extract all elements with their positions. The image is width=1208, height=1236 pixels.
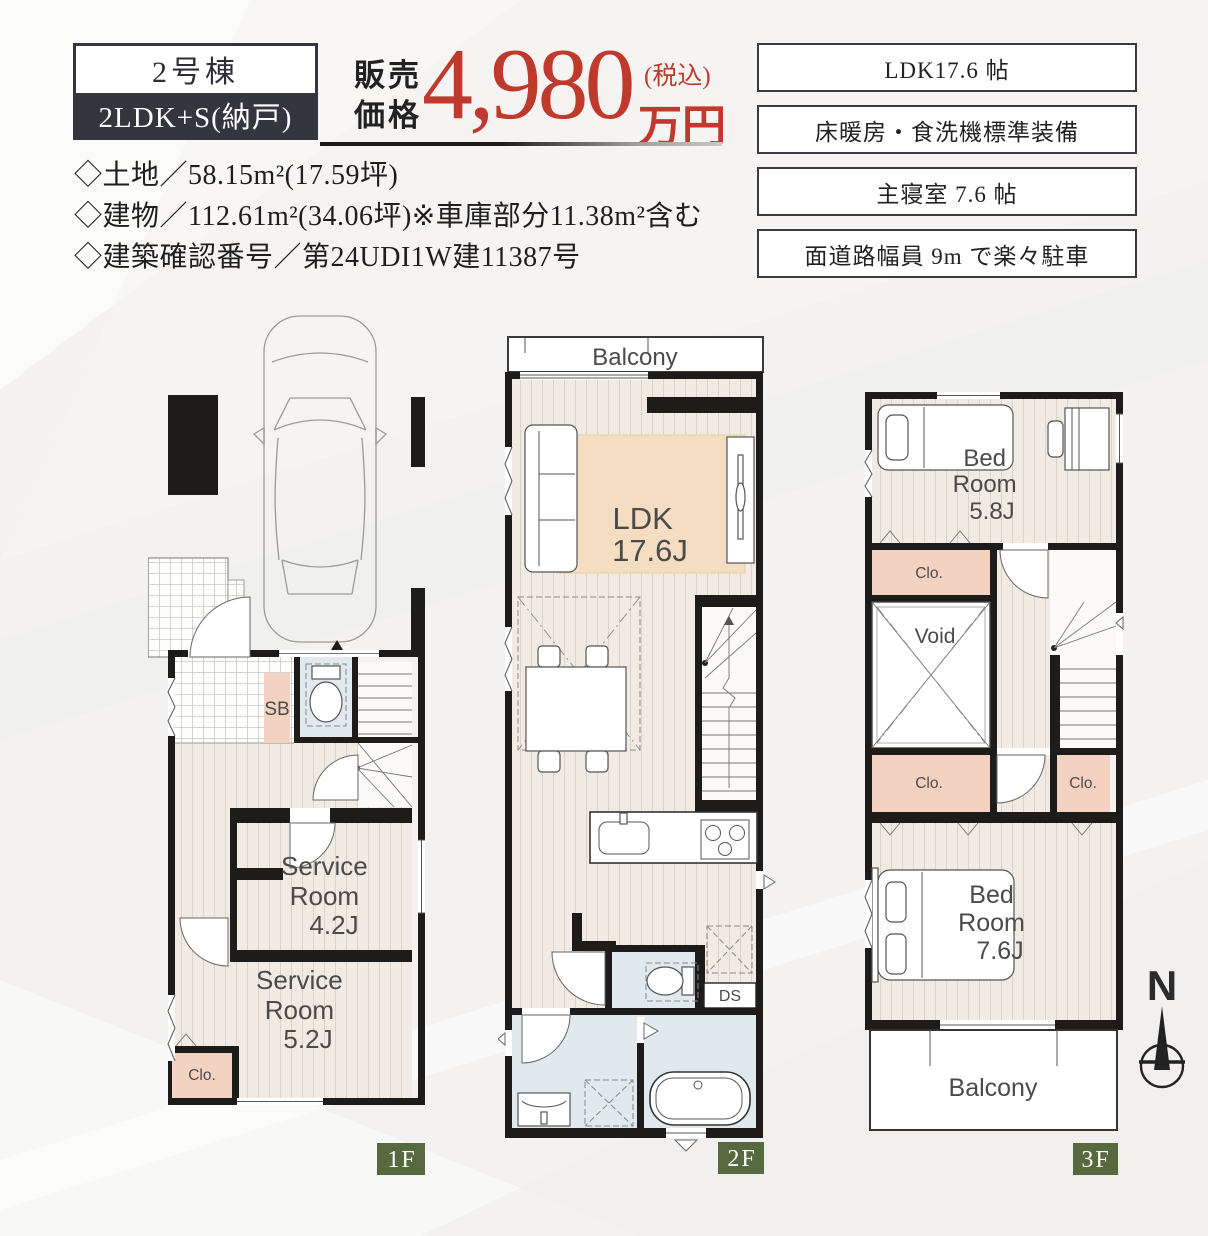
feature-road: 面道路幅員 9m で楽々駐車 bbox=[757, 229, 1137, 278]
dining-table-icon bbox=[526, 667, 626, 751]
window-entry-left bbox=[168, 678, 175, 736]
balcony-2f: Balcony bbox=[508, 337, 763, 372]
stairs-1f bbox=[354, 662, 412, 807]
void-area: Void bbox=[872, 602, 990, 748]
flyer-canvas: 2号棟 2LDK+S(納戸) 販売 価格 4,980 (税込) 万円 ◇土地／5… bbox=[0, 0, 1208, 1236]
sofa-icon bbox=[525, 425, 577, 572]
parking-wall-left bbox=[168, 395, 218, 495]
closet-1f-label: Clo. bbox=[188, 1067, 216, 1084]
balcony-3f: Balcony bbox=[870, 1030, 1117, 1130]
layout-type: 2LDK+S(納戸) bbox=[76, 93, 315, 137]
window-ldk-left bbox=[505, 447, 512, 515]
feature-main-bedroom: 主寝室 7.6 帖 bbox=[757, 167, 1137, 216]
window-stairs-right bbox=[1116, 613, 1123, 655]
duct-space-label: DS bbox=[719, 988, 741, 1005]
stairs-2f bbox=[695, 595, 763, 800]
window-bedroom-b-bottom bbox=[940, 1020, 1055, 1030]
building-number: 2号棟 bbox=[76, 46, 315, 93]
feature-equipment: 床暖房・食洗機標準装備 bbox=[757, 105, 1137, 154]
detail-land: ◇土地／58.15m²(17.59坪) bbox=[74, 156, 754, 197]
balcony-3f-label: Balcony bbox=[949, 1074, 1038, 1102]
detail-confirmation-number: ◇建築確認番号／第24UDI1W建11387号 bbox=[74, 238, 754, 279]
closet-b-label: Clo. bbox=[915, 775, 943, 792]
tv-board-icon bbox=[727, 437, 754, 563]
window-bath-bottom bbox=[666, 1128, 706, 1151]
window-service-a-right bbox=[418, 840, 425, 913]
svg-text:1F: 1F bbox=[387, 1147, 416, 1173]
floor-plan-2f: Balcony bbox=[498, 333, 798, 1178]
svg-text:2F: 2F bbox=[727, 1146, 756, 1172]
svg-text:3F: 3F bbox=[1081, 1147, 1110, 1173]
floor-plan-1f: SB Clo. bbox=[148, 298, 468, 1180]
vanity-icon bbox=[518, 1093, 570, 1126]
void-label: Void bbox=[915, 625, 956, 648]
feature-ldk: LDK17.6 帖 bbox=[757, 43, 1137, 92]
detail-building: ◇建物／112.61m²(34.06坪)※車庫部分11.38m²含む bbox=[74, 197, 754, 238]
compass-north-label: N bbox=[1147, 962, 1177, 1009]
price-label: 販売 価格 bbox=[354, 56, 422, 137]
bathtub-icon bbox=[650, 1072, 750, 1125]
compass: N bbox=[1125, 962, 1199, 1112]
price-block: 販売 価格 4,980 (税込) 万円 bbox=[320, 40, 730, 152]
closet-c-label: Clo. bbox=[1069, 775, 1097, 792]
balcony-door-2f bbox=[520, 372, 648, 380]
ldk-label: LDK 17.6J bbox=[612, 501, 688, 568]
window-desk-right bbox=[1116, 414, 1123, 463]
price-tax-note: (税込) bbox=[644, 56, 711, 92]
window-service-b-left bbox=[168, 995, 175, 1061]
building-badge: 2号棟 2LDK+S(納戸) bbox=[73, 43, 318, 140]
window-washroom-left bbox=[498, 1030, 512, 1056]
parking-wall-right bbox=[411, 397, 425, 467]
compass-needle-icon bbox=[1154, 1006, 1170, 1070]
price-underline bbox=[320, 142, 722, 146]
window-dining-left bbox=[505, 627, 512, 691]
feature-list: LDK17.6 帖 床暖房・食洗機標準装備 主寝室 7.6 帖 面道路幅員 9m… bbox=[757, 43, 1137, 291]
shoe-box-label: SB bbox=[264, 699, 289, 720]
window-bedroom-a-left bbox=[865, 450, 872, 497]
window-bedroom-b-left bbox=[865, 880, 872, 948]
kitchen-counter bbox=[590, 812, 757, 863]
balcony-2f-label: Balcony bbox=[592, 344, 677, 371]
car-icon bbox=[254, 316, 386, 642]
floor-plan-3f: Clo. Void bbox=[858, 388, 1140, 1183]
window-top-3f bbox=[937, 392, 1000, 399]
closet-a-label: Clo. bbox=[915, 565, 943, 582]
window-service-b-bottom bbox=[237, 1098, 323, 1105]
price-amount: 4,980 bbox=[422, 34, 632, 136]
property-details: ◇土地／58.15m²(17.59坪) ◇建物／112.61m²(34.06坪)… bbox=[74, 156, 754, 279]
side-vent-right bbox=[756, 871, 775, 889]
